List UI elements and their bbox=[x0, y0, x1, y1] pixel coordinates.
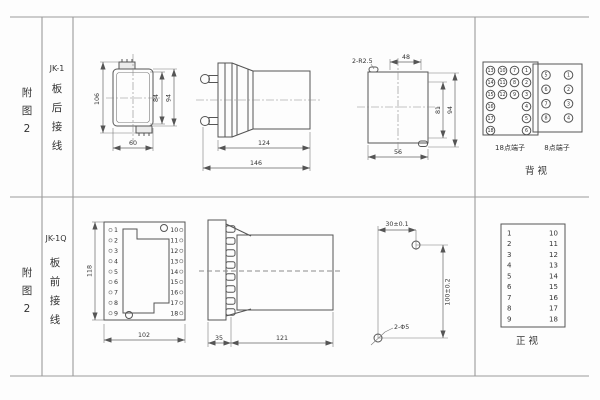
map-left-number: 6 bbox=[507, 283, 512, 291]
terminal-number: 17 bbox=[170, 300, 178, 307]
terminal-number: 1 bbox=[567, 73, 570, 79]
terminal-hole bbox=[109, 291, 112, 294]
terminal-hole bbox=[109, 270, 112, 273]
terminal-hole bbox=[109, 301, 112, 304]
dim-81: 81 bbox=[435, 106, 442, 114]
dim-94b: 94 bbox=[447, 106, 454, 114]
map-left-number: 2 bbox=[507, 240, 511, 248]
map-right-number: 14 bbox=[549, 272, 558, 280]
jk1-rear-outline-view: 106 84 94 60 bbox=[94, 54, 177, 151]
terminal-number: 6 bbox=[544, 87, 547, 93]
row2-fig-label: 附 图 2 bbox=[22, 266, 33, 315]
map-right-number: 13 bbox=[549, 262, 558, 270]
terminal-number: 15 bbox=[487, 92, 493, 98]
terminal-screw bbox=[226, 238, 235, 244]
terminal-number: 1 bbox=[114, 227, 118, 234]
fig-char: 附 bbox=[22, 86, 33, 99]
map-right-number: 17 bbox=[549, 305, 558, 313]
map-right-number: 11 bbox=[549, 240, 558, 248]
terminal-number: 6 bbox=[525, 128, 528, 134]
map-left-number: 3 bbox=[507, 251, 511, 259]
terminal-hole bbox=[180, 280, 183, 283]
terminal-number: 4 bbox=[525, 104, 528, 110]
wiring-char: 后 bbox=[52, 102, 63, 114]
dim-35: 35 bbox=[215, 335, 223, 342]
map-left-number: 4 bbox=[507, 262, 512, 270]
wiring-char: 线 bbox=[52, 139, 63, 152]
map-right-number: 16 bbox=[549, 294, 558, 302]
dim-146: 146 bbox=[250, 160, 262, 167]
terminal-number: 10 bbox=[170, 227, 178, 234]
terminal-number: 11 bbox=[170, 238, 178, 245]
terminal-number: 3 bbox=[525, 92, 528, 98]
terminal-hole bbox=[180, 228, 183, 231]
jk1q-side-view: 35 121 bbox=[199, 220, 341, 347]
terminal-number: 10 bbox=[499, 68, 505, 74]
terminal-hole bbox=[109, 312, 112, 315]
terminal-hole bbox=[180, 301, 183, 304]
terminal-hole bbox=[109, 280, 112, 283]
terminal-block-18: 131071141182151293164175186 18点端子 bbox=[483, 62, 538, 152]
terminal-number: 2 bbox=[114, 238, 118, 245]
terminal-hole bbox=[109, 228, 112, 231]
terminal-hole bbox=[180, 291, 183, 294]
row1-model-label: JK-1 板 后 接 线 bbox=[49, 64, 65, 152]
terminal-number: 16 bbox=[487, 104, 493, 110]
dim-84: 84 bbox=[153, 94, 160, 102]
fig-char: 附 bbox=[22, 266, 33, 279]
terminal-hole bbox=[180, 249, 183, 252]
drawing-sheet: 附 图 2 JK-1 板 后 接 线 106 84 94 bbox=[0, 0, 600, 400]
terminal-number: 2 bbox=[525, 80, 528, 86]
terminal-18-label: 18点端子 bbox=[495, 143, 525, 152]
map-left-number: 5 bbox=[507, 272, 511, 280]
terminal-hole bbox=[180, 312, 183, 315]
terminal-number: 11 bbox=[499, 80, 505, 86]
terminal-number: 5 bbox=[114, 269, 118, 276]
wiring-char: 板 bbox=[50, 256, 61, 269]
terminal-number: 5 bbox=[525, 116, 528, 122]
terminal-number: 13 bbox=[487, 68, 493, 74]
mounting-hole bbox=[161, 225, 168, 232]
wiring-char: 接 bbox=[52, 120, 63, 133]
dim-94: 94 bbox=[166, 94, 173, 102]
map-right-number: 10 bbox=[549, 229, 558, 237]
terminal-number: 9 bbox=[513, 92, 516, 98]
terminal-number: 18 bbox=[487, 128, 493, 134]
terminal-screw bbox=[226, 298, 235, 304]
terminal-number: 7 bbox=[513, 68, 516, 74]
terminal-number: 6 bbox=[114, 279, 118, 286]
terminal-number: 1 bbox=[525, 68, 528, 74]
dim-124: 124 bbox=[258, 140, 270, 147]
jk1-side-view: 124 146 bbox=[196, 63, 322, 171]
wiring-char: 板 bbox=[52, 82, 63, 95]
map-left-number: 8 bbox=[507, 305, 511, 313]
map-right-number: 12 bbox=[549, 251, 558, 259]
row2-model-label: JK-1Q 板 前 接 线 bbox=[44, 234, 66, 326]
terminal-hole bbox=[109, 249, 112, 252]
hole-callout: 2-Φ5 bbox=[394, 324, 409, 331]
terminal-number: 9 bbox=[114, 310, 118, 317]
terminal-map-table: 110211312413514615716817918 bbox=[501, 224, 565, 327]
wiring-char: 接 bbox=[50, 294, 61, 307]
fig-char: 2 bbox=[24, 123, 31, 135]
dim-60: 60 bbox=[129, 140, 137, 147]
terminal-number: 8 bbox=[544, 116, 547, 122]
dim-118: 118 bbox=[87, 265, 94, 277]
terminal-number: 8 bbox=[114, 300, 118, 307]
wiring-char: 前 bbox=[50, 275, 61, 288]
terminal-number: 8 bbox=[513, 80, 516, 86]
terminal-number: 13 bbox=[170, 258, 178, 265]
fig-char: 2 bbox=[24, 303, 31, 315]
terminal-number: 4 bbox=[114, 258, 118, 265]
fig-char: 图 bbox=[22, 285, 33, 297]
terminal-number: 3 bbox=[114, 248, 118, 255]
terminal-number: 7 bbox=[114, 290, 118, 297]
terminal-number: 14 bbox=[487, 80, 493, 86]
terminal-hole bbox=[180, 270, 183, 273]
terminal-screw bbox=[226, 250, 235, 256]
jk1-panel-cutout-view: 2-R2.5 48 81 94 56 bbox=[352, 54, 459, 160]
jk1q-front-view: 123456789 101112131415161718 118 102 bbox=[87, 222, 186, 343]
terminal-number: 16 bbox=[170, 290, 178, 297]
terminal-number: 14 bbox=[170, 269, 178, 276]
terminal-number: 12 bbox=[499, 92, 505, 98]
terminal-number: 5 bbox=[544, 73, 547, 79]
map-left-number: 1 bbox=[507, 229, 511, 237]
terminal-hole bbox=[180, 260, 183, 263]
terminal-screw bbox=[226, 286, 235, 292]
terminal-block-8: 51627384 8点端子 bbox=[533, 64, 582, 152]
terminal-number: 2 bbox=[567, 87, 570, 93]
map-right-number: 15 bbox=[549, 283, 558, 291]
terminal-number: 12 bbox=[170, 248, 178, 255]
terminal-hole bbox=[180, 239, 183, 242]
dim-106: 106 bbox=[94, 93, 101, 105]
slot-callout: 2-R2.5 bbox=[352, 58, 373, 65]
map-left-number: 7 bbox=[507, 294, 511, 302]
terminal-number: 15 bbox=[170, 279, 178, 286]
rear-view-label: 背 视 bbox=[525, 165, 548, 177]
dim-30: 30±0.1 bbox=[385, 221, 408, 228]
terminal-screw bbox=[226, 274, 235, 280]
front-view-label: 正 视 bbox=[516, 335, 539, 347]
model-name: JK-1 bbox=[49, 64, 65, 73]
terminal-8-label: 8点端子 bbox=[544, 143, 569, 152]
wiring-char: 线 bbox=[50, 313, 61, 326]
terminal-screw bbox=[226, 226, 235, 232]
terminal-screw bbox=[226, 262, 235, 268]
terminal-hole bbox=[109, 260, 112, 263]
fig-char: 图 bbox=[22, 105, 33, 117]
jk1q-drilling-plan: 30±0.1 100±0.2 2-Φ5 bbox=[371, 221, 452, 345]
dim-56: 56 bbox=[394, 149, 402, 156]
dim-121: 121 bbox=[276, 335, 288, 342]
terminal-number: 7 bbox=[544, 101, 547, 107]
terminal-number: 18 bbox=[170, 310, 178, 317]
diagram-svg: 附 图 2 JK-1 板 后 接 线 106 84 94 bbox=[0, 0, 600, 400]
terminal-number: 4 bbox=[567, 116, 570, 122]
row1-fig-label: 附 图 2 bbox=[22, 86, 33, 135]
map-left-number: 9 bbox=[507, 315, 511, 323]
terminal-number: 17 bbox=[487, 116, 493, 122]
map-right-number: 18 bbox=[549, 315, 558, 323]
dim-100: 100±0.2 bbox=[445, 278, 452, 305]
dim-102: 102 bbox=[138, 332, 150, 339]
terminal-number: 3 bbox=[567, 101, 570, 107]
dim-48: 48 bbox=[402, 54, 410, 61]
terminal-hole bbox=[109, 239, 112, 242]
model-name: JK-1Q bbox=[44, 234, 66, 243]
